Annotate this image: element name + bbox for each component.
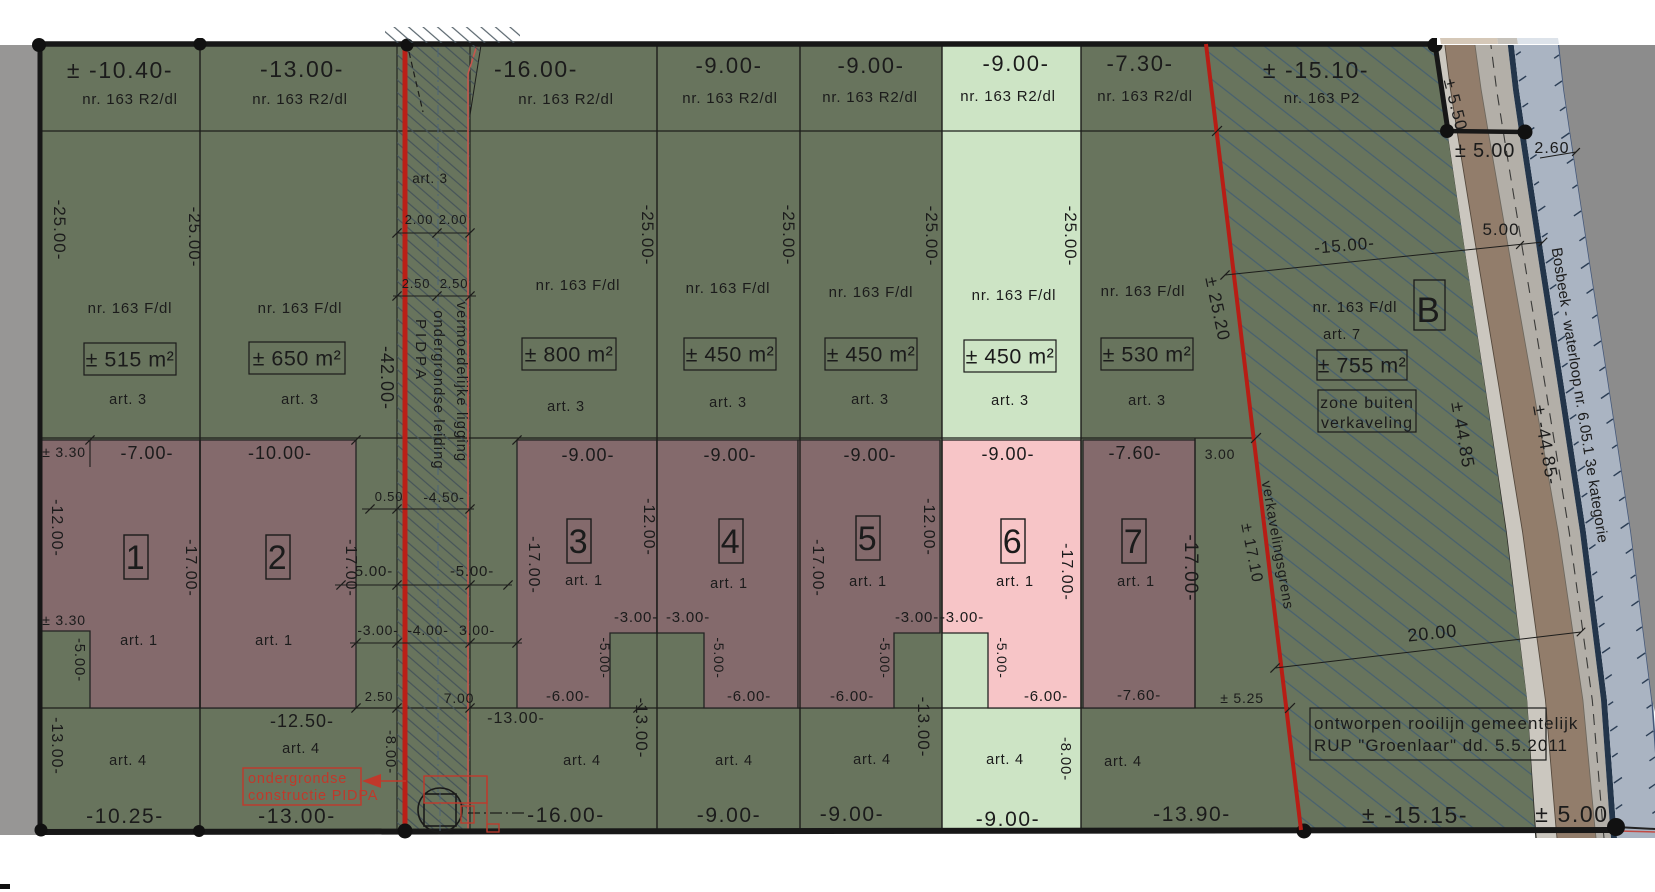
svg-text:nr. 163 F/dl: nr. 163 F/dl: [972, 287, 1057, 304]
svg-text:nr. 163 F/dl: nr. 163 F/dl: [258, 300, 343, 317]
svg-text:-5.00-: -5.00-: [877, 637, 893, 678]
svg-text:-3.00-: -3.00-: [357, 622, 398, 638]
svg-text:-7.60-: -7.60-: [1117, 687, 1161, 704]
svg-text:nr. 163 F/dl: nr. 163 F/dl: [1313, 299, 1398, 316]
svg-text:5: 5: [858, 520, 879, 558]
svg-text:art. 3: art. 3: [991, 393, 1029, 409]
svg-text:-17.00-: -17.00-: [525, 536, 542, 594]
svg-text:-3.00-: -3.00-: [940, 609, 984, 626]
svg-text:2.00: 2.00: [439, 212, 468, 227]
svg-text:-10.00-: -10.00-: [248, 443, 312, 463]
svg-text:-7.00-: -7.00-: [120, 443, 173, 463]
svg-text:-6.00-: -6.00-: [1024, 688, 1068, 705]
svg-text:-17.00-: -17.00-: [809, 539, 826, 597]
svg-text:-13.90-: -13.90-: [1153, 803, 1231, 826]
svg-text:6: 6: [1003, 523, 1024, 561]
svg-text:vermoedelijke ligging: vermoedelijke ligging: [453, 302, 469, 463]
svg-text:0.50: 0.50: [375, 489, 404, 504]
svg-text:± 450 m²: ± 450 m²: [827, 343, 916, 367]
svg-text:-17.00-: -17.00-: [182, 539, 199, 597]
svg-text:nr. 163 R2/dl: nr. 163 R2/dl: [822, 89, 917, 106]
svg-text:-12.00-: -12.00-: [920, 498, 937, 556]
svg-text:-25.00-: -25.00-: [638, 205, 657, 266]
svg-text:-25.00-: -25.00-: [185, 207, 204, 268]
svg-text:-6.00-: -6.00-: [546, 688, 590, 705]
svg-text:-9.00-: -9.00-: [843, 445, 896, 465]
svg-text:-13.00-: -13.00-: [258, 805, 336, 828]
svg-text:-13.00-: -13.00-: [48, 717, 65, 775]
svg-text:-7.30-: -7.30-: [1106, 51, 1173, 76]
svg-text:zone buiten: zone buiten: [1320, 395, 1414, 412]
svg-text:constructie PIDPA: constructie PIDPA: [248, 788, 378, 804]
svg-text:-9.00-: -9.00-: [697, 804, 761, 827]
svg-text:-25.00-: -25.00-: [779, 205, 798, 266]
svg-text:ontworpen rooilijn gemeentelij: ontworpen rooilijn gemeentelijk: [1314, 714, 1578, 733]
svg-text:art. 4: art. 4: [715, 753, 753, 769]
svg-text:-25.00-: -25.00-: [922, 206, 941, 267]
svg-text:nr. 163 R2/dl: nr. 163 R2/dl: [1097, 88, 1192, 105]
svg-text:art. 1: art. 1: [996, 574, 1034, 590]
svg-text:art. 1: art. 1: [849, 574, 887, 590]
svg-text:art. 1: art. 1: [255, 633, 293, 649]
svg-text:-10.25-: -10.25-: [86, 805, 164, 828]
svg-text:nr. 163 R2/dl: nr. 163 R2/dl: [82, 91, 177, 108]
svg-text:art. 4: art. 4: [109, 753, 147, 769]
svg-text:-4.50-: -4.50-: [423, 489, 464, 505]
svg-text:nr. 163 R2/dl: nr. 163 R2/dl: [960, 88, 1055, 105]
svg-text:-3.00-: -3.00-: [614, 609, 658, 626]
svg-text:± 5.00: ± 5.00: [1455, 140, 1515, 162]
svg-text:nr. 163 F/dl: nr. 163 F/dl: [88, 300, 173, 317]
svg-text:art. 1: art. 1: [710, 576, 748, 592]
svg-text:art. 1: art. 1: [120, 633, 158, 649]
svg-text:-3.00-: -3.00-: [666, 609, 710, 626]
svg-text:± 450 m²: ± 450 m²: [686, 343, 775, 367]
svg-text:-16.00-: -16.00-: [494, 56, 578, 82]
svg-text:2.50: 2.50: [440, 276, 469, 291]
svg-text:-4.00-: -4.00-: [407, 622, 448, 638]
svg-text:-25.00-: -25.00-: [50, 200, 69, 261]
svg-text:-13.00-: -13.00-: [914, 697, 933, 758]
svg-text:4: 4: [721, 523, 742, 561]
svg-text:ondergrondse leiding: ondergrondse leiding: [430, 310, 446, 469]
svg-text:± 755 m²: ± 755 m²: [1318, 354, 1407, 378]
svg-text:± 5.00: ± 5.00: [1535, 801, 1608, 827]
svg-text:2: 2: [268, 539, 289, 577]
svg-text:nr. 163 R2/dl: nr. 163 R2/dl: [252, 91, 347, 108]
svg-text:-5.00-: -5.00-: [597, 637, 613, 678]
svg-text:-9.00-: -9.00-: [837, 53, 904, 78]
svg-text:-13.00-: -13.00-: [487, 710, 545, 727]
svg-text:7: 7: [1124, 523, 1145, 561]
svg-text:1: 1: [126, 539, 147, 577]
svg-text:± 450 m²: ± 450 m²: [966, 345, 1055, 369]
svg-text:3.00: 3.00: [1205, 446, 1235, 462]
svg-text:art. 3: art. 3: [709, 395, 747, 411]
svg-text:nr. 163 F/dl: nr. 163 F/dl: [536, 277, 621, 294]
svg-text:nr. 163 R2/dl: nr. 163 R2/dl: [682, 90, 777, 107]
svg-text:2.00: 2.00: [405, 212, 434, 227]
svg-text:-16.00-: -16.00-: [527, 804, 605, 827]
svg-text:art. 4: art. 4: [282, 741, 320, 757]
svg-text:-9.00-: -9.00-: [561, 445, 614, 465]
svg-text:art. 1: art. 1: [1117, 574, 1155, 590]
svg-text:± -15.15-: ± -15.15-: [1362, 802, 1468, 828]
svg-text:art. 7: art. 7: [1323, 327, 1361, 343]
svg-text:-9.00-: -9.00-: [981, 444, 1034, 464]
svg-text:art. 4: art. 4: [563, 753, 601, 769]
svg-text:-9.00-: -9.00-: [820, 803, 884, 826]
svg-text:nr. 163 R2/dl: nr. 163 R2/dl: [518, 91, 613, 108]
svg-text:-13.00-: -13.00-: [632, 698, 651, 759]
svg-text:3: 3: [569, 523, 590, 561]
svg-text:-3.00-: -3.00-: [895, 609, 939, 626]
svg-text:-9.00-: -9.00-: [976, 808, 1040, 831]
svg-text:art. 3: art. 3: [547, 399, 585, 415]
svg-text:art. 4: art. 4: [986, 752, 1024, 768]
svg-text:art. 4: art. 4: [853, 752, 891, 768]
svg-text:-5.00-: -5.00-: [71, 638, 88, 682]
svg-text:7.00: 7.00: [444, 690, 474, 706]
svg-text:-8.00-: -8.00-: [1057, 737, 1074, 781]
svg-text:-5.00-: -5.00-: [994, 637, 1010, 678]
svg-text:nr. 163 F/dl: nr. 163 F/dl: [829, 284, 914, 301]
svg-text:art. 3: art. 3: [412, 171, 448, 186]
svg-text:RUP "Groenlaar" dd. 5.5.2011: RUP "Groenlaar" dd. 5.5.2011: [1314, 736, 1568, 755]
svg-text:-12.00-: -12.00-: [48, 499, 65, 557]
svg-text:2.50: 2.50: [365, 689, 394, 704]
svg-text:-42.00-: -42.00-: [377, 346, 397, 410]
svg-text:± 3.30: ± 3.30: [42, 612, 86, 628]
svg-text:-12.00-: -12.00-: [640, 498, 657, 556]
svg-text:± 515 m²: ± 515 m²: [86, 348, 175, 372]
svg-text:B: B: [1417, 291, 1442, 330]
svg-text:art. 3: art. 3: [1128, 393, 1166, 409]
svg-text:nr. 163 P2: nr. 163 P2: [1284, 90, 1360, 107]
svg-text:± 650 m²: ± 650 m²: [253, 347, 342, 371]
svg-text:5.00: 5.00: [1482, 220, 1519, 239]
svg-text:-9.00-: -9.00-: [703, 445, 756, 465]
svg-text:nr. 163 F/dl: nr. 163 F/dl: [686, 280, 771, 297]
svg-text:± -10.40-: ± -10.40-: [67, 57, 173, 83]
svg-text:art. 4: art. 4: [1104, 754, 1142, 770]
svg-text:-25.00-: -25.00-: [1061, 206, 1080, 267]
svg-text:nr. 163 F/dl: nr. 163 F/dl: [1101, 283, 1186, 300]
svg-text:-6.00-: -6.00-: [727, 688, 771, 705]
svg-text:-7.60-: -7.60-: [1108, 443, 1161, 463]
svg-text:art. 3: art. 3: [109, 392, 147, 408]
svg-text:-17.00-: -17.00-: [1180, 534, 1201, 601]
svg-text:2.60: 2.60: [1534, 140, 1569, 157]
svg-text:2.50: 2.50: [402, 276, 431, 291]
svg-text:± 800 m²: ± 800 m²: [525, 343, 614, 367]
svg-text:-9.00-: -9.00-: [695, 53, 762, 78]
svg-text:± 530 m²: ± 530 m²: [1103, 343, 1192, 367]
svg-text:± 5.25: ± 5.25: [1220, 690, 1264, 706]
svg-text:3.00-: 3.00-: [459, 622, 495, 638]
svg-text:-6.00-: -6.00-: [830, 688, 874, 705]
svg-text:-17.00-: -17.00-: [1058, 543, 1075, 601]
svg-text:-13.00-: -13.00-: [260, 56, 344, 82]
svg-text:± 3.30: ± 3.30: [42, 444, 86, 460]
svg-text:-12.50-: -12.50-: [270, 711, 334, 731]
svg-text:-8.00-: -8.00-: [382, 730, 399, 774]
svg-text:-5.00-: -5.00-: [711, 637, 727, 678]
svg-text:-5.00-: -5.00-: [349, 563, 393, 580]
svg-text:-5.00-: -5.00-: [450, 563, 494, 580]
svg-text:art. 3: art. 3: [281, 392, 319, 408]
svg-text:ondergrondse: ondergrondse: [248, 771, 347, 787]
svg-text:± -15.10-: ± -15.10-: [1263, 57, 1369, 83]
svg-text:art. 1: art. 1: [565, 573, 603, 589]
svg-text:-9.00-: -9.00-: [982, 51, 1049, 76]
svg-text:PIDPA: PIDPA: [412, 319, 429, 383]
svg-text:verkaveling: verkaveling: [1321, 415, 1413, 432]
svg-text:art. 3: art. 3: [851, 392, 889, 408]
